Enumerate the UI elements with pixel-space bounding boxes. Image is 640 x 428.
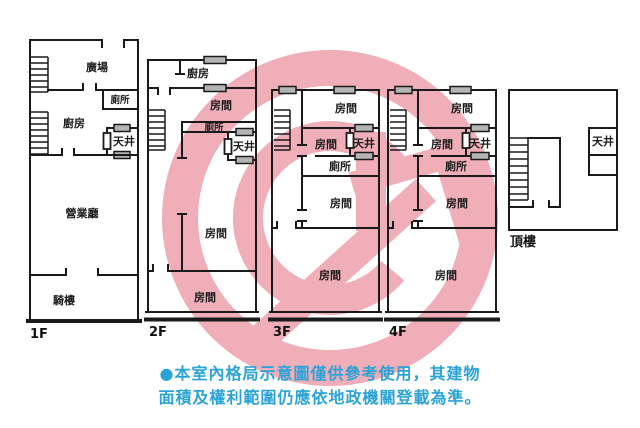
2f-lightwell-window-top	[236, 129, 253, 136]
disclaimer: ●本室內格局示意圖僅供參考使用，其建物 面積及權利範圍仍應依地政機關登載為準。	[0, 362, 640, 410]
room-label-lightwell-4f: 天井	[469, 136, 491, 150]
watermark-outer-ring	[180, 68, 480, 368]
floor-plan-1f: 廣場 廁所 廚房 天井 營業廳 騎樓 1F	[28, 40, 140, 342]
disclaimer-line-1: ●本室內格局示意圖僅供參考使用，其建物	[0, 362, 640, 386]
room-label-lightwell-1f: 天井	[113, 134, 135, 148]
room-label-room-back-2f: 房間	[194, 290, 216, 304]
2f-kitchen-partition	[176, 60, 184, 74]
1f-lightwell-window-left	[104, 133, 111, 149]
2f-stairs	[149, 110, 165, 150]
4f-window-top-left	[395, 87, 412, 94]
2f-lightwell-window-left	[225, 139, 232, 154]
3f-window-top-right	[334, 87, 355, 94]
room-label-plaza: 廣場	[86, 60, 108, 74]
room-label-room-middle-4f: 房間	[446, 196, 468, 210]
roof-outer-walls	[509, 90, 617, 230]
floor-label-1f: 1F	[30, 327, 48, 342]
room-label-business-hall: 營業廳	[66, 206, 99, 220]
room-label-room-front-2f: 房間	[210, 98, 232, 112]
room-label-room-middle-2f: 房間	[205, 226, 227, 240]
4f-lightwell-window-top	[471, 125, 489, 132]
room-label-lightwell-roof: 天井	[592, 134, 614, 148]
floor-plan-roof: 天井 頂樓	[509, 90, 617, 250]
room-label-lightwell-2f: 天井	[233, 139, 255, 153]
1f-lightwell-window-top	[114, 125, 130, 132]
1f-outer-walls	[30, 40, 138, 321]
room-label-room-front-3f: 房間	[335, 101, 357, 115]
room-label-room-middle-3f: 房間	[330, 196, 352, 210]
3f-window-top-left	[279, 87, 296, 94]
room-label-arcade: 騎樓	[53, 293, 75, 307]
room-label-kitchen-2f: 廚房	[187, 66, 209, 80]
floor-label-2f: 2F	[149, 325, 167, 340]
room-label-lightwell-3f: 天井	[353, 136, 375, 150]
room-label-kitchen-1f: 廚房	[63, 116, 85, 130]
room-label-room-back-3f: 房間	[319, 268, 341, 282]
floor-label-4f: 4F	[389, 325, 407, 340]
roof-stairs	[510, 138, 528, 200]
room-label-room-inner-3f: 房間	[315, 137, 337, 151]
watermark-arrow-shaft	[262, 190, 426, 338]
room-label-room-back-4f: 房間	[435, 268, 457, 282]
floor-label-roof: 頂樓	[510, 234, 536, 250]
room-label-toilet-4f: 廁所	[445, 159, 467, 173]
agency-watermark-logo	[180, 68, 480, 368]
room-label-room-front-4f: 房間	[451, 101, 473, 115]
room-label-room-inner-4f: 房間	[431, 137, 453, 151]
2f-window-top	[204, 57, 226, 64]
1f-wall-arcade-top	[30, 269, 138, 275]
1f-stairs-upper	[30, 57, 48, 92]
4f-window-top-right	[450, 87, 471, 94]
room-label-toilet-1f: 廁所	[110, 94, 130, 106]
3f-lightwell-window-top	[355, 125, 373, 132]
2f-window-front-wall	[204, 85, 226, 92]
room-label-toilet-3f: 廁所	[329, 159, 351, 173]
1f-stairs-lower	[30, 112, 48, 154]
floor-label-3f: 3F	[273, 325, 291, 340]
4f-lightwell-window-bottom	[471, 153, 489, 160]
room-label-toilet-2f: 廁所	[204, 122, 224, 134]
2f-lightwell-window-bottom	[236, 157, 253, 164]
disclaimer-line-2: 面積及權利範圍仍應依地政機關登載為準。	[0, 386, 640, 410]
floor-plan-page: 廣場 廁所 廚房 天井 營業廳 騎樓 1F 廚房 房間 廁所 天井 房間 房間 …	[0, 0, 640, 428]
3f-lightwell-window-bottom	[355, 153, 373, 160]
